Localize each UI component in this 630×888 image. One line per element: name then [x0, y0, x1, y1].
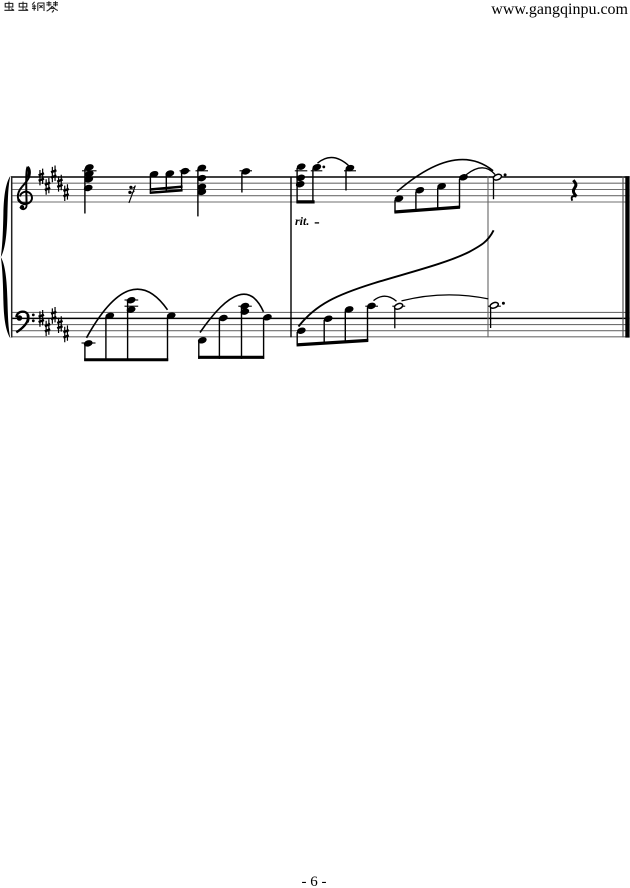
svg-text:www.gangqinpu.com: www.gangqinpu.com [491, 1, 628, 18]
svg-text:- 6 -: - 6 - [302, 874, 327, 888]
svg-text:rit.: rit. [295, 214, 309, 228]
